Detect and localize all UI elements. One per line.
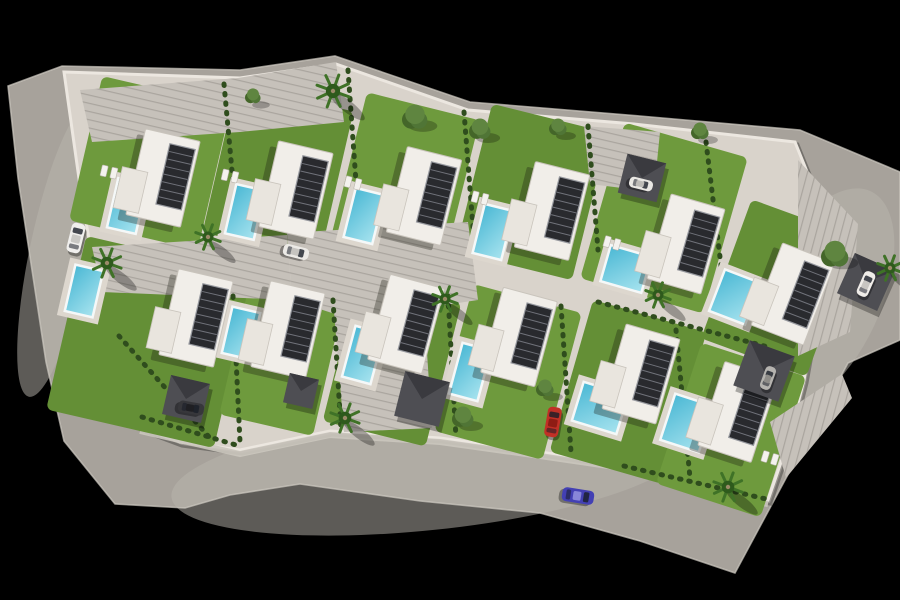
tree-crown — [472, 119, 489, 136]
tree-crown — [538, 379, 552, 393]
tree-crown — [693, 122, 707, 136]
car-roof — [185, 404, 194, 412]
palm-trunk — [206, 235, 210, 239]
tree-crown — [455, 407, 472, 424]
site-plan-svg — [0, 0, 900, 600]
tree-crown — [247, 88, 259, 100]
palm-trunk — [726, 485, 730, 489]
palm-trunk — [343, 416, 347, 420]
tree-crown — [825, 241, 846, 262]
palm-trunk — [105, 261, 109, 265]
car-roof — [572, 491, 581, 501]
tree-crown — [551, 118, 565, 132]
palm-trunk — [656, 293, 660, 297]
palm-trunk — [888, 266, 892, 270]
site-plan-render — [0, 0, 900, 600]
palm-trunk — [331, 89, 335, 93]
car-roof — [548, 418, 558, 427]
palm-trunk — [443, 297, 447, 301]
tree-crown — [405, 105, 425, 125]
